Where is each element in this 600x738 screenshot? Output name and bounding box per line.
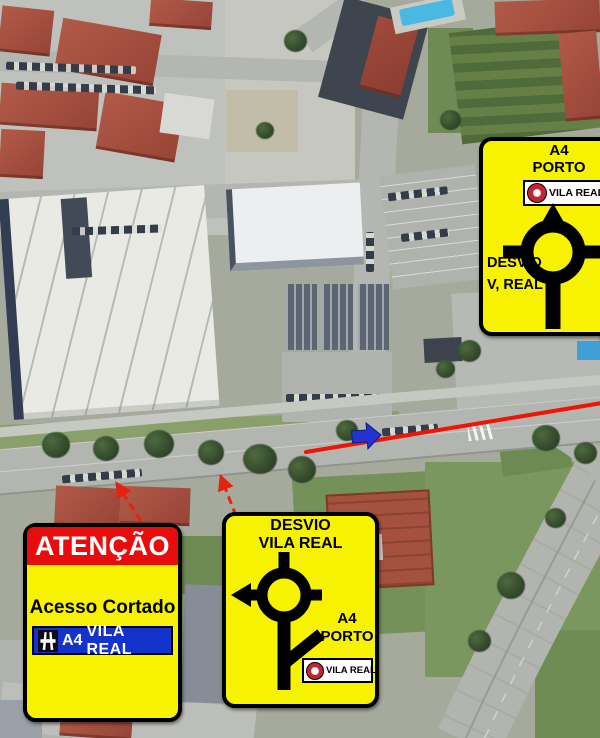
carport-canopies — [286, 284, 390, 350]
destination: PORTO — [320, 628, 374, 645]
detour-note-line2: V, REAL — [484, 277, 550, 293]
attention-sign: ATENÇÃO Acesso Cortado A4 VILA REAL — [23, 523, 182, 722]
blue-object — [577, 341, 600, 360]
crosswalk — [467, 423, 494, 441]
title-line2: VILA REAL — [226, 535, 375, 553]
no-entry-label: VILA REAL — [549, 187, 600, 199]
destination: PORTO — [519, 159, 599, 176]
no-entry-icon — [528, 184, 546, 202]
large-warehouse-building — [0, 185, 219, 420]
title-line1: DESVIO — [226, 517, 375, 535]
route-number: A4 — [519, 142, 599, 159]
no-entry-label: VILA REAL — [326, 665, 376, 676]
badge-route: A4 — [62, 632, 82, 650]
attention-header-banner: ATENÇÃO — [27, 527, 178, 565]
no-entry-panel: VILA REAL — [523, 180, 600, 206]
route-number: A4 — [320, 610, 374, 627]
no-entry-icon — [307, 663, 323, 679]
motorway-badge: A4 VILA REAL — [32, 626, 173, 655]
store-building — [226, 183, 364, 272]
parking-lot — [379, 165, 488, 290]
attention-header: ATENÇÃO — [35, 531, 170, 562]
attention-message: Acesso Cortado — [27, 597, 178, 619]
badge-destination: VILA REAL — [86, 623, 160, 659]
detour-sign-top: A4 PORTO VILA REAL DESVIO V, REAL — [479, 137, 600, 336]
detour-sign-bottom: DESVIO VILA REAL A4 PORTO VILA REAL — [222, 512, 379, 708]
detour-note-line1: DESVIO — [484, 255, 550, 271]
traffic-detour-plan: A4 PORTO VILA REAL DESVIO V, REAL DESVIO… — [0, 0, 600, 738]
motorway-icon — [38, 630, 58, 652]
no-entry-panel: VILA REAL — [302, 658, 373, 683]
